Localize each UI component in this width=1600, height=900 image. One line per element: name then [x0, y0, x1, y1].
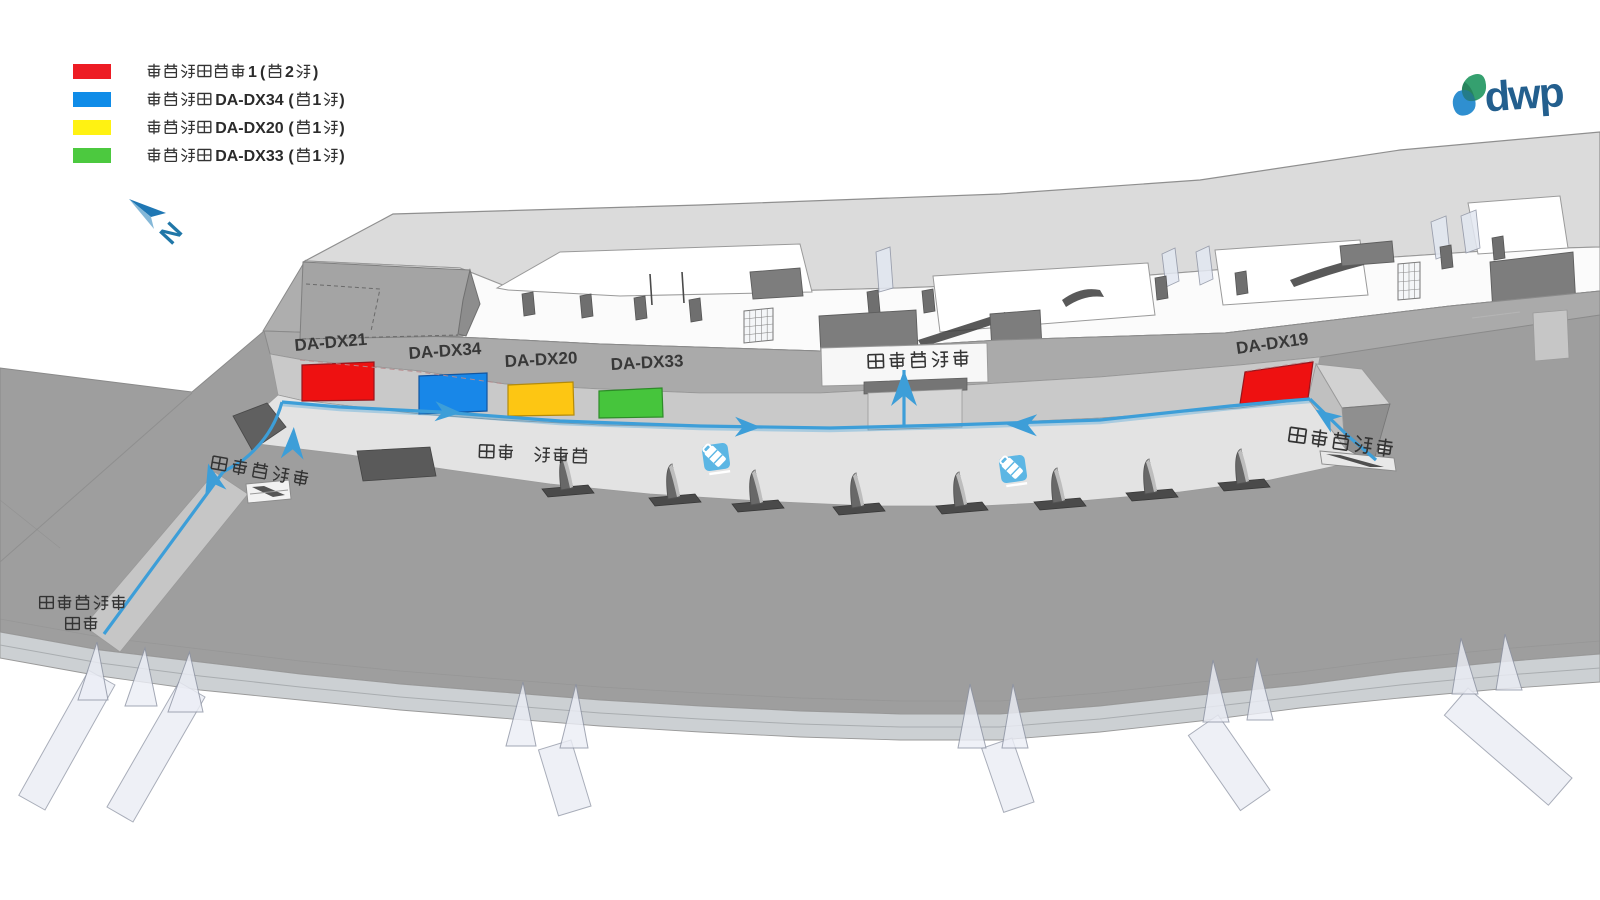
svg-text:DA-DX20: DA-DX20 — [215, 120, 284, 137]
svg-text:DA-DX20: DA-DX20 — [504, 348, 578, 371]
svg-text:DA-DX33: DA-DX33 — [610, 351, 684, 374]
svg-text:): ) — [339, 120, 344, 137]
svg-text:DA-DX33: DA-DX33 — [215, 148, 284, 165]
svg-text:): ) — [339, 92, 344, 109]
svg-text:N: N — [153, 216, 188, 250]
svg-text:1: 1 — [312, 148, 321, 165]
svg-text:1: 1 — [248, 64, 257, 81]
svg-text:1: 1 — [312, 120, 321, 137]
svg-text:DA-DX34: DA-DX34 — [215, 92, 284, 109]
svg-text:(: ( — [288, 148, 294, 165]
svg-text:(: ( — [288, 120, 294, 137]
svg-text:): ) — [339, 148, 344, 165]
svg-text:(: ( — [260, 64, 266, 81]
svg-text:): ) — [313, 64, 318, 81]
svg-text:2: 2 — [285, 64, 294, 81]
svg-text:(: ( — [288, 92, 294, 109]
svg-text:1: 1 — [312, 92, 321, 109]
svg-text:dwp: dwp — [1483, 68, 1564, 120]
